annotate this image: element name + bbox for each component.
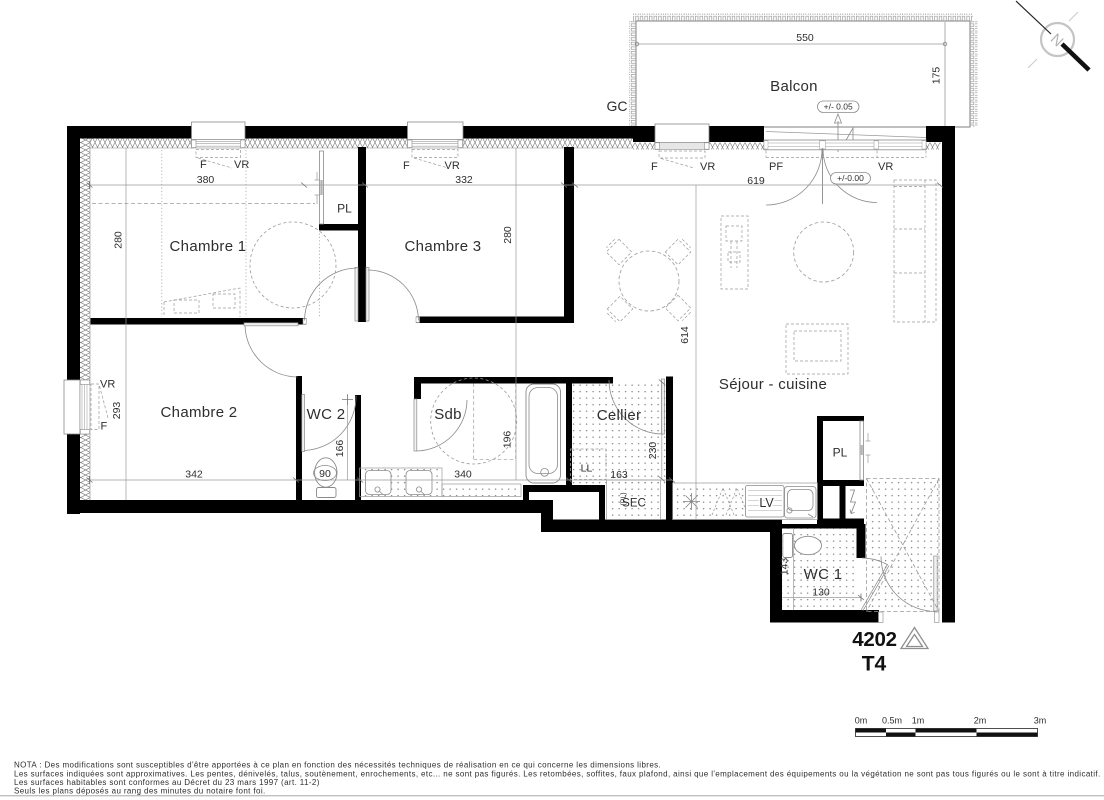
svg-text:F: F xyxy=(101,421,108,433)
svg-text:280: 280 xyxy=(502,226,514,244)
svg-text:166: 166 xyxy=(334,440,346,458)
svg-text:614: 614 xyxy=(679,326,691,344)
svg-text:+/- 0.05: +/- 0.05 xyxy=(824,102,853,112)
svg-text:VR: VR xyxy=(234,159,249,171)
svg-text:3m: 3m xyxy=(1034,716,1047,726)
svg-text:90: 90 xyxy=(319,468,331,480)
svg-text:0m: 0m xyxy=(855,716,868,726)
svg-text:550: 550 xyxy=(796,32,814,44)
svg-text:619: 619 xyxy=(747,175,765,187)
svg-text:+/-0.00: +/-0.00 xyxy=(837,173,864,183)
svg-text:175: 175 xyxy=(931,67,943,85)
svg-text:293: 293 xyxy=(111,402,123,420)
svg-text:130: 130 xyxy=(812,587,830,599)
svg-text:230: 230 xyxy=(647,442,659,460)
svg-text:VR: VR xyxy=(878,161,893,173)
svg-text:196: 196 xyxy=(502,431,514,449)
svg-text:WC 2: WC 2 xyxy=(307,406,346,423)
svg-text:PL: PL xyxy=(833,446,848,460)
svg-text:Séjour - cuisine: Séjour - cuisine xyxy=(719,376,827,393)
svg-text:VR: VR xyxy=(445,160,460,172)
svg-text:VR: VR xyxy=(100,379,115,391)
svg-text:Cellier: Cellier xyxy=(597,407,642,424)
svg-text:PL: PL xyxy=(337,202,352,216)
svg-text:F: F xyxy=(651,161,658,173)
svg-text:380: 380 xyxy=(197,174,215,186)
svg-text:332: 332 xyxy=(455,174,473,186)
svg-text:(PL): (PL) xyxy=(621,492,628,505)
svg-text:163: 163 xyxy=(610,469,628,481)
svg-text:T4: T4 xyxy=(862,653,887,676)
svg-text:Seuls les plans déposés au ran: Seuls les plans déposés au rang des minu… xyxy=(14,786,266,795)
svg-text:Chambre 2: Chambre 2 xyxy=(161,404,238,421)
svg-text:PF: PF xyxy=(769,161,783,173)
svg-text:WC 1: WC 1 xyxy=(804,566,843,583)
svg-text:F: F xyxy=(403,160,410,172)
svg-text:NOTA : Des modifications sont: NOTA : Des modifications sont susceptibl… xyxy=(14,761,661,770)
svg-text:Chambre 1: Chambre 1 xyxy=(170,238,247,255)
svg-text:342: 342 xyxy=(185,469,203,481)
svg-text:Sdb: Sdb xyxy=(434,406,462,423)
svg-text:4202: 4202 xyxy=(852,628,896,651)
svg-text:LV: LV xyxy=(759,496,774,510)
svg-text:340: 340 xyxy=(454,469,472,481)
svg-text:VR: VR xyxy=(700,161,715,173)
svg-text:Chambre 3: Chambre 3 xyxy=(405,238,482,255)
svg-text:GC: GC xyxy=(607,98,628,114)
svg-text:143: 143 xyxy=(779,558,791,576)
svg-text:2m: 2m xyxy=(974,716,987,726)
svg-text:280: 280 xyxy=(113,231,125,249)
svg-text:F: F xyxy=(200,159,207,171)
svg-text:LL: LL xyxy=(581,463,593,475)
svg-text:1m: 1m xyxy=(912,716,925,726)
svg-text:Balcon: Balcon xyxy=(770,78,818,95)
svg-text:0.5m: 0.5m xyxy=(882,716,902,726)
